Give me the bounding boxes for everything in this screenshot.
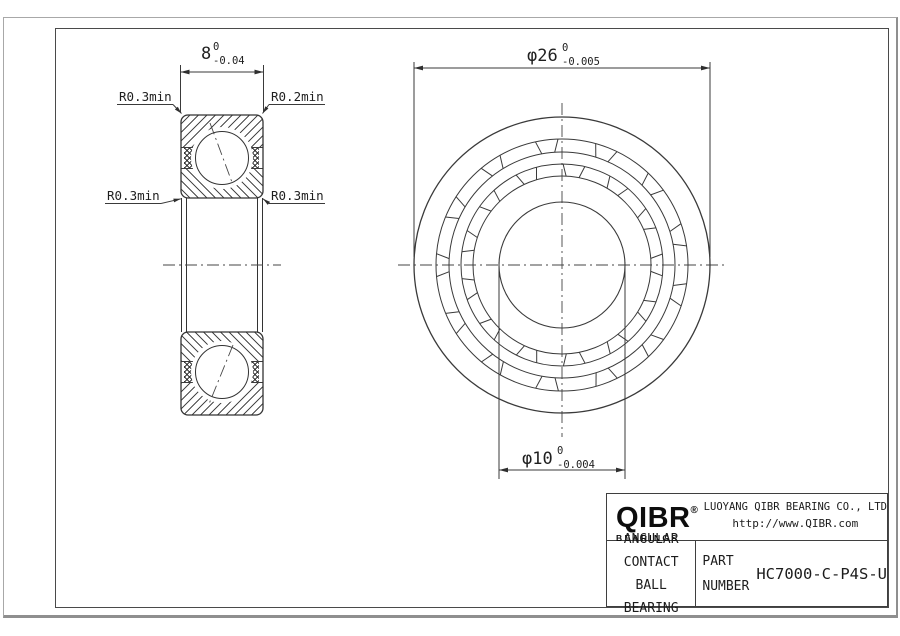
product-line-2: BALL BEARING xyxy=(607,574,695,620)
dim-bore-lower-tol: -0.004 xyxy=(557,459,595,471)
radius-label-top-left: R0.3min xyxy=(119,89,172,104)
dim-od-value: φ26 xyxy=(527,46,558,66)
registered-trademark-symbol: ® xyxy=(691,505,698,516)
product-line-1: ANGULAR CONTACT xyxy=(607,528,695,574)
dim-width-value: 8 xyxy=(201,44,211,64)
centerlines xyxy=(163,103,726,437)
product-description: ANGULAR CONTACT BALL BEARING xyxy=(607,541,696,607)
part-label-line-2: NUMBER xyxy=(702,574,749,599)
part-label-line-1: PART xyxy=(702,549,749,574)
dim-bore-value: φ10 xyxy=(522,449,553,469)
dim-bore-upper-tol: 0 xyxy=(557,445,563,457)
company-name: LUOYANG QIBR BEARING CO., LTD xyxy=(704,499,887,515)
company-website: http://www.QIBR.com xyxy=(704,515,887,532)
title-block-detail-row: ANGULAR CONTACT BALL BEARING PART NUMBER… xyxy=(607,541,887,607)
radius-label-mid-right: R0.3min xyxy=(271,188,324,203)
dim-od-upper-tol: 0 xyxy=(562,42,568,54)
radius-labels: R0.3min R0.2min R0.3min R0.3min xyxy=(105,89,325,205)
drawing-sheet: 8 0 -0.04 R0.3min R0.2mi xyxy=(0,0,900,636)
part-number-cell: PART NUMBER HC7000-C-P4S-U xyxy=(696,541,887,607)
radius-label-top-right: R0.2min xyxy=(271,89,324,104)
radius-label-mid-left: R0.3min xyxy=(107,188,160,203)
dim-width-lower-tol: -0.04 xyxy=(213,55,245,67)
part-number-value: HC7000-C-P4S-U xyxy=(756,565,887,583)
company-info: LUOYANG QIBR BEARING CO., LTD http://www… xyxy=(704,494,887,540)
title-block: QIBR® BEARINGS LUOYANG QIBR BEARING CO.,… xyxy=(606,493,888,607)
dim-width-upper-tol: 0 xyxy=(213,41,219,53)
dim-od-lower-tol: -0.005 xyxy=(562,56,600,68)
dimension-width: 8 0 -0.04 xyxy=(181,41,264,112)
